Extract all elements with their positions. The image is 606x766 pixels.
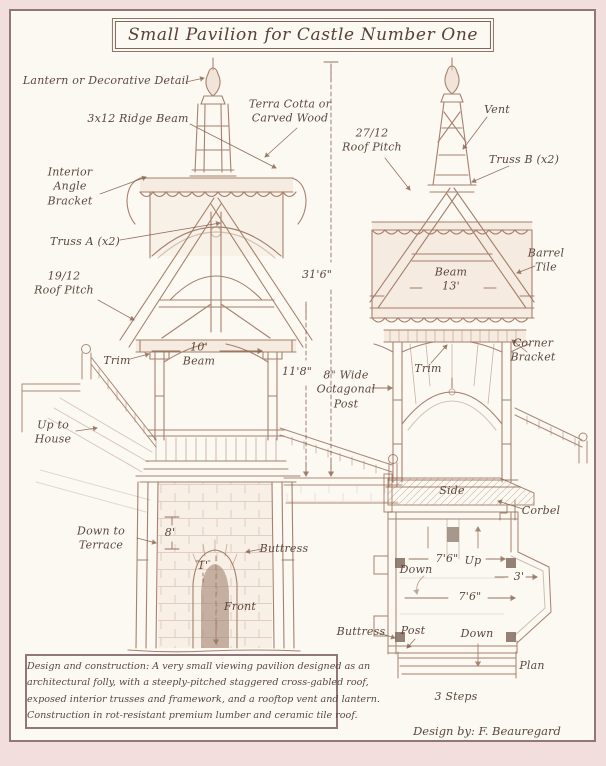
label-trim-left: Trim [103, 354, 130, 368]
description-note-box: Design and construction: A very small vi… [25, 654, 338, 729]
note-line: architectural folly, with a steeply-pitc… [27, 675, 336, 692]
label-down-to-terrace: Down to Terrace [77, 525, 125, 554]
label-octagonal-post: 8" Wide Octagonal Post [317, 369, 376, 412]
label-dim-8: 8' [165, 526, 175, 540]
label-corbel: Corbel [522, 504, 561, 518]
note-line: Design and construction: A very small vi… [27, 659, 336, 676]
label-corner-bracket: Corner Bracket [510, 337, 555, 366]
label-dim-1: 1' [198, 559, 208, 573]
note-line: Construction in rot-resistant premium lu… [27, 708, 336, 725]
label-barrel-tile: Barrel Tile [528, 247, 564, 276]
label-front-view: Front [224, 600, 256, 614]
label-buttress-plan: Buttress [337, 625, 386, 639]
label-dim-11-8: 11'8" [282, 365, 312, 379]
label-up-plan: Up [465, 554, 482, 568]
label-plan-view: Plan [519, 659, 544, 673]
label-dim-3: 3' [514, 570, 524, 584]
note-line: exposed interior trusses and framework, … [27, 692, 336, 709]
label-three-steps: 3 Steps [434, 690, 477, 704]
label-dim-7-6-lower: 7'6" [459, 590, 482, 604]
label-terra-cotta: Terra Cotta or Carved Wood [249, 98, 331, 127]
title-box: Small Pavilion for Castle Number One [115, 21, 491, 49]
drawing-page: Small Pavilion for Castle Number One Lan… [0, 0, 606, 766]
note-lines: Design and construction: A very small vi… [27, 659, 336, 725]
label-down-plan-lower: Down [461, 627, 494, 641]
label-truss-b: Truss B (x2) [489, 153, 559, 167]
design-credit: Design by: F. Beauregard [413, 724, 561, 738]
page-title: Small Pavilion for Castle Number One [128, 25, 478, 45]
label-beam-10: 10' Beam [183, 341, 215, 370]
label-down-plan-upper: Down [400, 563, 433, 577]
label-buttress-left: Buttress [260, 542, 309, 556]
label-vent: Vent [484, 103, 510, 117]
label-roof-pitch-19-12: 19/12 Roof Pitch [34, 270, 94, 299]
label-truss-a: Truss A (x2) [50, 235, 120, 249]
left-elevation-sketch [120, 58, 312, 652]
label-ridge-beam: 3x12 Ridge Beam [87, 112, 188, 126]
label-dim-31-6: 31'6" [302, 268, 332, 282]
label-dim-7-6-upper: 7'6" [436, 552, 459, 566]
label-side-view: Side [439, 484, 464, 498]
label-trim-right: Trim [414, 362, 441, 376]
label-up-to-house: Up to House [35, 419, 71, 448]
label-roof-pitch-27-12: 27/12 Roof Pitch [342, 127, 402, 156]
label-lantern-detail: Lantern or Decorative Detail [23, 74, 189, 88]
label-interior-angle-bracket: Interior Angle Bracket [47, 166, 92, 209]
label-post-plan: Post [401, 624, 425, 638]
label-beam-13: Beam 13' [435, 266, 467, 295]
